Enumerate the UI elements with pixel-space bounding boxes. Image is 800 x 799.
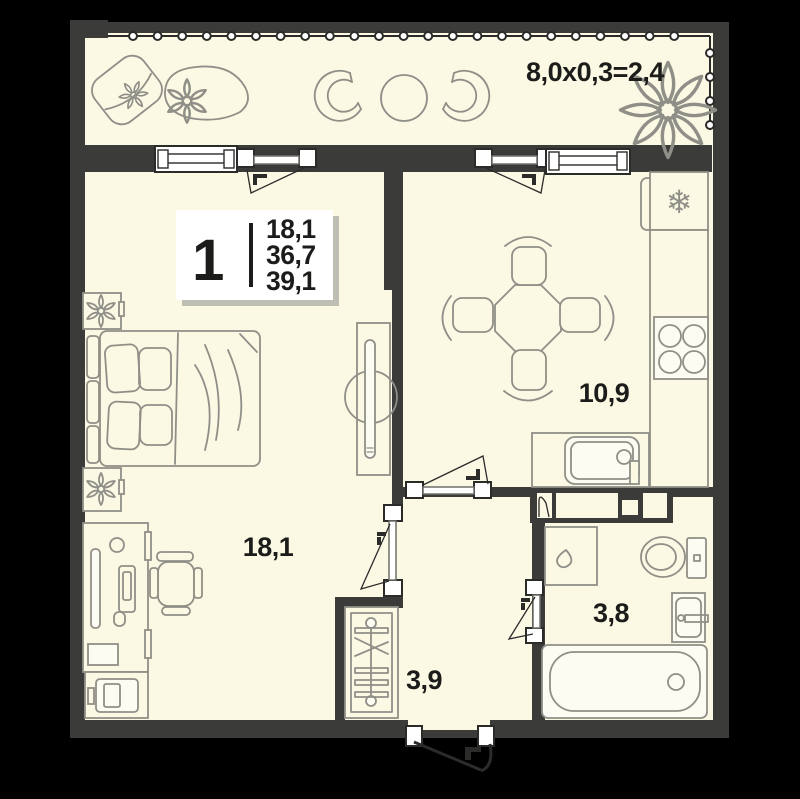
- chair: [512, 247, 546, 285]
- legend-rooms-count: 1: [192, 228, 224, 293]
- printer-cabinet: [85, 672, 148, 718]
- monitor: [91, 549, 100, 628]
- wall-corner-top-left: [85, 20, 108, 38]
- dining-table: [495, 285, 561, 351]
- bed: [87, 331, 260, 466]
- tv: [365, 340, 375, 458]
- stove: [654, 317, 708, 379]
- living-room-window: [155, 146, 237, 172]
- living-room-area-label: 18,1: [243, 532, 294, 562]
- nightstand-bottom: [83, 468, 124, 511]
- hallway-wardrobe: [345, 607, 398, 718]
- nightstand-top: [83, 293, 124, 329]
- bathtub: [542, 645, 707, 718]
- wall-balcony-top: [85, 22, 713, 33]
- wall-niche-left: [335, 608, 345, 720]
- entrance-door: [406, 720, 494, 771]
- toilet-tank: [687, 538, 706, 578]
- floor-plan: ❄: [0, 0, 800, 799]
- chair: [512, 350, 546, 390]
- door-swing-arc: [481, 744, 491, 771]
- kitchen-area-label: 10,9: [579, 378, 630, 408]
- fridge: ❄: [641, 172, 708, 230]
- hallway-area-label: 3,9: [406, 665, 443, 695]
- fridge-snowflake-icon: ❄: [666, 183, 693, 221]
- chair: [560, 298, 600, 332]
- wall-bottom: [70, 720, 729, 738]
- wall-living-kitchen-thin: [392, 290, 403, 487]
- legend-area-line-3: 39,1: [266, 266, 316, 296]
- bathroom-area-label: 3,8: [593, 598, 630, 628]
- balcony-dimension-label: 8,0x0,3=2,4: [526, 57, 664, 87]
- washing-machine: [545, 527, 597, 585]
- headboard-segment: [87, 336, 99, 378]
- kitchen-sink: [565, 437, 639, 484]
- chair: [453, 298, 493, 332]
- vent-shaft-openings: [537, 493, 667, 518]
- bathroom-sink: [672, 593, 708, 642]
- kitchen-window: [546, 149, 630, 174]
- wall-living-kitchen-thick: [384, 172, 403, 290]
- kitchen-sink-counter: [532, 433, 649, 487]
- headboard-segment: [87, 426, 99, 463]
- legend-card: 1 18,1 36,7 39,1: [176, 210, 339, 306]
- paper-tray: [88, 644, 118, 665]
- wall-right: [713, 22, 729, 738]
- legend-divider: [249, 223, 253, 287]
- desk: [83, 523, 151, 672]
- headboard-segment: [87, 381, 99, 423]
